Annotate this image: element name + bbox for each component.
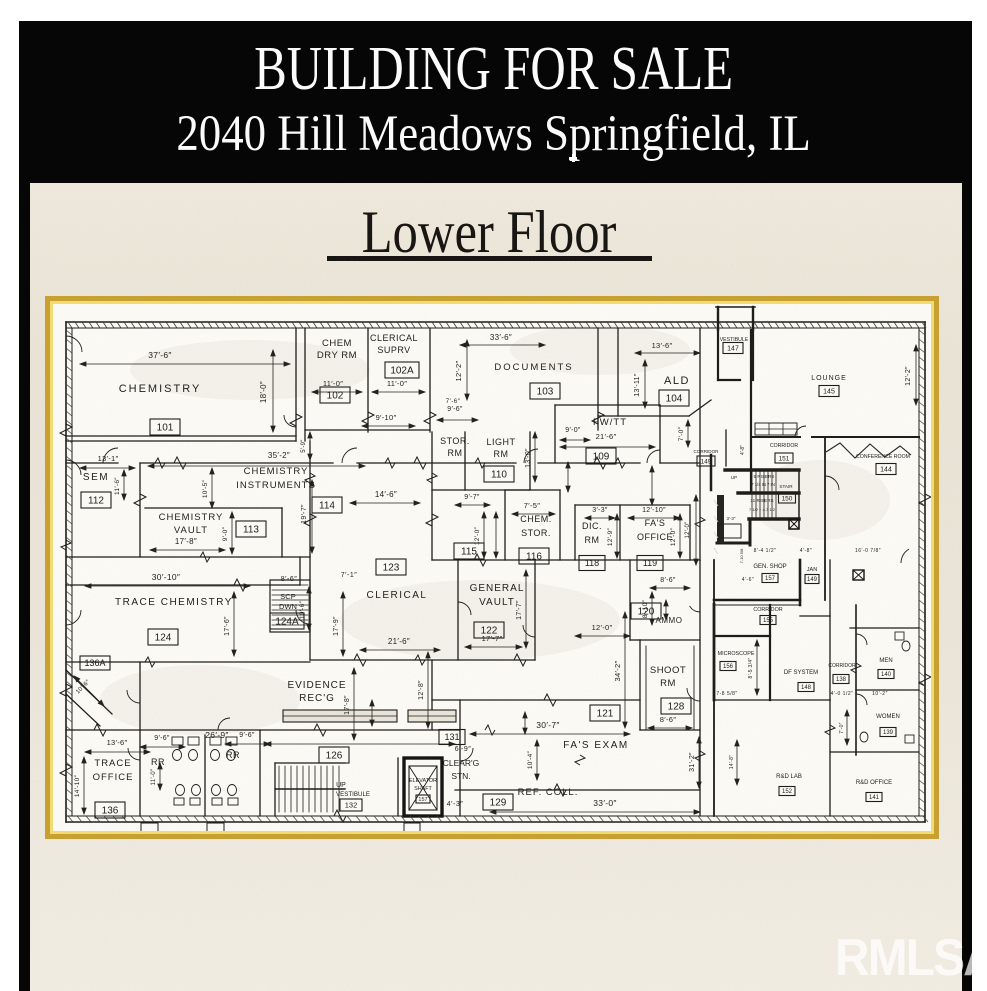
svg-text:17′-8″: 17′-8″ [175, 537, 197, 546]
svg-text:CLEAR'G: CLEAR'G [443, 758, 480, 768]
svg-text:TRACE CHEMISTRY: TRACE CHEMISTRY [115, 597, 233, 608]
svg-text:10′-2″: 10′-2″ [872, 691, 888, 697]
svg-text:31′-2″: 31′-2″ [689, 752, 696, 772]
svg-text:12′-2″: 12′-2″ [905, 366, 912, 386]
svg-text:118: 118 [585, 558, 599, 568]
svg-text:13′-1″: 13′-1″ [98, 454, 119, 463]
svg-text:136A: 136A [84, 658, 105, 668]
svg-text:110: 110 [491, 470, 507, 481]
svg-text:4′-3″: 4′-3″ [447, 801, 463, 808]
svg-text:148: 148 [801, 685, 812, 691]
svg-text:9′-0″: 9′-0″ [565, 427, 581, 434]
svg-text:124: 124 [155, 633, 172, 644]
svg-text:VAULT: VAULT [174, 525, 208, 536]
svg-text:7′-5″: 7′-5″ [524, 501, 540, 510]
svg-text:149: 149 [701, 458, 712, 465]
svg-text:SUPRV: SUPRV [377, 345, 410, 355]
svg-text:9′-0″: 9′-0″ [222, 526, 229, 541]
svg-text:OFFICE: OFFICE [93, 772, 134, 783]
svg-text:12′-0″: 12′-0″ [474, 526, 481, 545]
svg-text:4′-8″: 4′-8″ [800, 548, 812, 554]
svg-text:MEN: MEN [879, 658, 892, 664]
svg-text:149: 149 [807, 577, 818, 583]
svg-text:13′-6″: 13′-6″ [107, 738, 128, 747]
svg-text:7′-0″: 7′-0″ [678, 426, 685, 441]
svg-text:OFFICE: OFFICE [637, 532, 673, 542]
svg-text:10′-6″: 10′-6″ [299, 600, 306, 619]
svg-text:12′-0″: 12′-0″ [685, 521, 691, 539]
svg-text:RM: RM [660, 678, 676, 689]
svg-text:156: 156 [723, 664, 734, 670]
svg-text:12′-0″: 12′-0″ [670, 527, 677, 546]
svg-text:8′-5 3/4″: 8′-5 3/4″ [748, 658, 754, 679]
svg-text:CLERICAL: CLERICAL [367, 590, 428, 601]
svg-text:33′-6″: 33′-6″ [490, 333, 512, 342]
svg-text:5′-9″: 5′-9″ [301, 439, 307, 453]
svg-text:12′-2″: 12′-2″ [454, 361, 463, 382]
svg-text:RR: RR [226, 750, 240, 760]
svg-text:9′-6″: 9′-6″ [239, 732, 255, 739]
svg-text:VESTIBULE: VESTIBULE [336, 791, 370, 798]
svg-text:12′-10″: 12′-10″ [642, 507, 666, 514]
svg-text:37′-6″: 37′-6″ [148, 350, 171, 360]
svg-text:21′-6″: 21′-6″ [596, 432, 617, 441]
svg-text:126: 126 [326, 751, 343, 762]
svg-text:104: 104 [666, 394, 683, 405]
svg-text:136: 136 [102, 806, 119, 817]
svg-text:GEN. SHOP: GEN. SHOP [753, 564, 786, 570]
svg-text:ELEVATOR: ELEVATOR [409, 778, 437, 784]
svg-text:CHEMISTRY: CHEMISTRY [244, 466, 309, 477]
svg-text:30′-10″: 30′-10″ [152, 572, 180, 582]
svg-text:RM: RM [448, 448, 463, 458]
svg-text:151: 151 [779, 455, 790, 462]
svg-text:MICROSCOPE: MICROSCOPE [718, 651, 755, 657]
svg-text:35′-2″: 35′-2″ [268, 451, 290, 460]
svg-text:WOMEN: WOMEN [876, 714, 900, 720]
svg-text:FW/TT: FW/TT [593, 417, 627, 428]
svg-text:CHEMISTRY: CHEMISTRY [159, 512, 224, 523]
svg-text:157: 157 [765, 576, 776, 582]
svg-text:157: 157 [418, 797, 427, 803]
svg-text:132: 132 [345, 801, 358, 810]
svg-text:11′-0″: 11′-0″ [387, 379, 407, 388]
svg-text:26′-9″: 26′-9″ [205, 730, 228, 740]
svg-text:CORRIDOR: CORRIDOR [693, 449, 719, 454]
svg-text:120: 120 [638, 607, 655, 618]
svg-text:STOR.: STOR. [440, 436, 470, 446]
svg-text:152: 152 [782, 789, 793, 795]
svg-text:LOUNGE: LOUNGE [811, 375, 847, 382]
svg-text:DF SYSTEM: DF SYSTEM [784, 670, 818, 676]
svg-text:DWN: DWN [279, 602, 297, 611]
svg-text:116: 116 [526, 552, 542, 563]
svg-text:CORRIDOR: CORRIDOR [753, 607, 782, 613]
svg-text:VESTIBULE: VESTIBULE [720, 337, 749, 343]
svg-text:14′-6″: 14′-6″ [375, 490, 397, 499]
svg-text:DOCUMENTS: DOCUMENTS [494, 362, 573, 373]
svg-text:DRY RM: DRY RM [317, 350, 357, 361]
svg-text:SHAFT: SHAFT [414, 786, 432, 792]
svg-text:6′-9″: 6′-9″ [455, 746, 471, 753]
svg-text:CHEMISTRY: CHEMISTRY [119, 383, 202, 395]
svg-text:VAULT: VAULT [479, 597, 515, 608]
svg-text:REC'G: REC'G [299, 693, 335, 704]
svg-text:12′-9″: 12′-9″ [607, 527, 614, 546]
svg-text:150: 150 [782, 495, 793, 502]
svg-text:SCP: SCP [280, 592, 295, 601]
svg-text:10′-5″: 10′-5″ [202, 479, 209, 498]
svg-text:102: 102 [327, 391, 344, 402]
svg-text:129: 129 [490, 798, 507, 809]
svg-text:101: 101 [157, 423, 174, 434]
svg-text:UP: UP [731, 475, 737, 480]
svg-text:R&D LAB: R&D LAB [776, 774, 802, 780]
svg-text:9′-6″: 9′-6″ [154, 735, 170, 742]
svg-text:INSTRUMENTS: INSTRUMENTS [236, 480, 316, 491]
svg-text:LIGHT: LIGHT [486, 437, 515, 447]
svg-text:112: 112 [88, 496, 104, 507]
svg-text:8′-6″: 8′-6″ [660, 715, 676, 724]
svg-text:18′-0″: 18′-0″ [259, 381, 268, 403]
svg-text:123: 123 [383, 563, 400, 574]
svg-text:ALD: ALD [664, 375, 690, 387]
svg-text:11′-6″: 11′-6″ [114, 477, 121, 495]
svg-text:33′-0″: 33′-0″ [593, 798, 616, 808]
svg-text:121: 121 [597, 709, 614, 720]
svg-text:17′-6″: 17′-6″ [224, 616, 231, 636]
svg-text:7′-6″: 7′-6″ [446, 399, 461, 405]
svg-text:16′-0 7/8″: 16′-0 7/8″ [855, 548, 881, 554]
svg-text:9′-7″: 9′-7″ [464, 494, 480, 501]
svg-text:17′-7″: 17′-7″ [516, 600, 523, 620]
svg-text:SEM: SEM [83, 472, 109, 483]
svg-text:14′-8″: 14′-8″ [729, 755, 735, 770]
svg-text:138: 138 [836, 677, 847, 683]
svg-text:STN.: STN. [451, 771, 470, 781]
svg-text:115: 115 [461, 547, 477, 558]
svg-text:9′-6″: 9′-6″ [447, 406, 463, 413]
svg-text:R&D OFFICE: R&D OFFICE [856, 780, 892, 786]
svg-text:GENERAL: GENERAL [470, 583, 525, 594]
svg-text:3′-3″: 3′-3″ [727, 516, 736, 521]
svg-text:7 1/4 IN 7 IN: 7 1/4 IN 7 IN [751, 482, 775, 487]
svg-text:103: 103 [537, 387, 554, 398]
svg-text:102A: 102A [390, 366, 414, 377]
svg-text:139: 139 [883, 730, 894, 736]
svg-text:7-8 5/8″: 7-8 5/8″ [716, 691, 737, 697]
svg-text:FA'S EXAM: FA'S EXAM [563, 740, 628, 751]
svg-text:124A: 124A [275, 617, 299, 628]
svg-text:21′-6″: 21′-6″ [388, 637, 410, 646]
svg-text:SHOOT: SHOOT [650, 665, 686, 676]
svg-text:JAN: JAN [807, 567, 817, 573]
svg-text:CHEM: CHEM [322, 338, 352, 349]
svg-text:TRACE: TRACE [94, 758, 131, 769]
svg-text:8′-4 1/2″: 8′-4 1/2″ [754, 548, 777, 554]
svg-text:CORRIDOR: CORRIDOR [770, 443, 798, 449]
svg-text:STAIR: STAIR [779, 484, 793, 489]
svg-text:9′-10″: 9′-10″ [376, 413, 397, 422]
svg-text:10′-4″: 10′-4″ [527, 750, 534, 769]
svg-text:7′-0″: 7′-0″ [839, 722, 845, 733]
svg-text:11 RISERS: 11 RISERS [750, 498, 773, 503]
svg-text:4′-6″: 4′-6″ [742, 577, 754, 583]
svg-text:141: 141 [869, 795, 880, 801]
svg-text:11′-0″: 11′-0″ [323, 379, 343, 388]
svg-text:109: 109 [593, 452, 610, 463]
svg-text:EVIDENCE: EVIDENCE [287, 680, 346, 691]
svg-text:7-10 5/8: 7-10 5/8 [739, 548, 744, 563]
svg-text:8′-6″: 8′-6″ [281, 576, 297, 583]
svg-text:119: 119 [643, 558, 657, 568]
svg-text:CONFERENCE ROOM: CONFERENCE ROOM [856, 454, 910, 460]
svg-text:4′-0 1/2″: 4′-0 1/2″ [831, 691, 854, 697]
svg-text:3′-3″: 3′-3″ [592, 507, 608, 514]
svg-text:UP: UP [336, 782, 346, 789]
svg-text:RM: RM [585, 535, 600, 545]
svg-text:7 1/2 + 4-7 1/2: 7 1/2 + 4-7 1/2 [749, 507, 776, 512]
svg-text:4′-8″: 4′-8″ [740, 445, 746, 455]
svg-text:STOR.: STOR. [521, 528, 551, 538]
svg-text:CHEM.: CHEM. [520, 514, 552, 524]
svg-text:114: 114 [319, 501, 335, 512]
svg-text:144: 144 [880, 467, 892, 474]
svg-text:128: 128 [668, 702, 685, 713]
svg-text:131: 131 [444, 732, 459, 742]
svg-text:11′-0″: 11′-0″ [151, 768, 157, 785]
svg-text:5 RISERS: 5 RISERS [754, 474, 775, 479]
svg-text:122: 122 [481, 626, 498, 637]
svg-text:8′-6″: 8′-6″ [660, 577, 676, 584]
svg-text:CORRIDOR: CORRIDOR [828, 663, 856, 669]
svg-text:13′-6″: 13′-6″ [652, 341, 673, 350]
svg-text:30′-7″: 30′-7″ [536, 720, 559, 730]
svg-text:17′-8″: 17′-8″ [344, 695, 351, 715]
svg-text:19′-7″: 19′-7″ [301, 504, 308, 524]
svg-text:17′-9″: 17′-9″ [333, 616, 340, 636]
svg-text:RM: RM [494, 449, 509, 459]
svg-text:155: 155 [763, 618, 774, 624]
svg-text:DIC.: DIC. [582, 521, 602, 531]
svg-text:145: 145 [823, 389, 835, 396]
svg-text:147: 147 [727, 346, 739, 353]
svg-text:REF. COLL.: REF. COLL. [518, 787, 579, 798]
svg-text:FA'S: FA'S [645, 518, 666, 528]
svg-text:13′-11″: 13′-11″ [634, 373, 641, 396]
svg-text:14′-10″: 14′-10″ [74, 774, 81, 797]
svg-text:AMMO: AMMO [656, 616, 683, 625]
svg-text:140: 140 [881, 672, 892, 678]
svg-text:12′-8″: 12′-8″ [418, 680, 425, 700]
svg-text:RR: RR [151, 757, 165, 767]
svg-text:CLERICAL: CLERICAL [370, 333, 418, 343]
svg-text:7′-1″: 7′-1″ [341, 572, 357, 579]
svg-text:113: 113 [243, 525, 259, 536]
svg-text:34′-2″: 34′-2″ [613, 661, 622, 682]
svg-text:13′-0″: 13′-0″ [525, 448, 532, 468]
svg-text:12′-0″: 12′-0″ [592, 623, 613, 632]
